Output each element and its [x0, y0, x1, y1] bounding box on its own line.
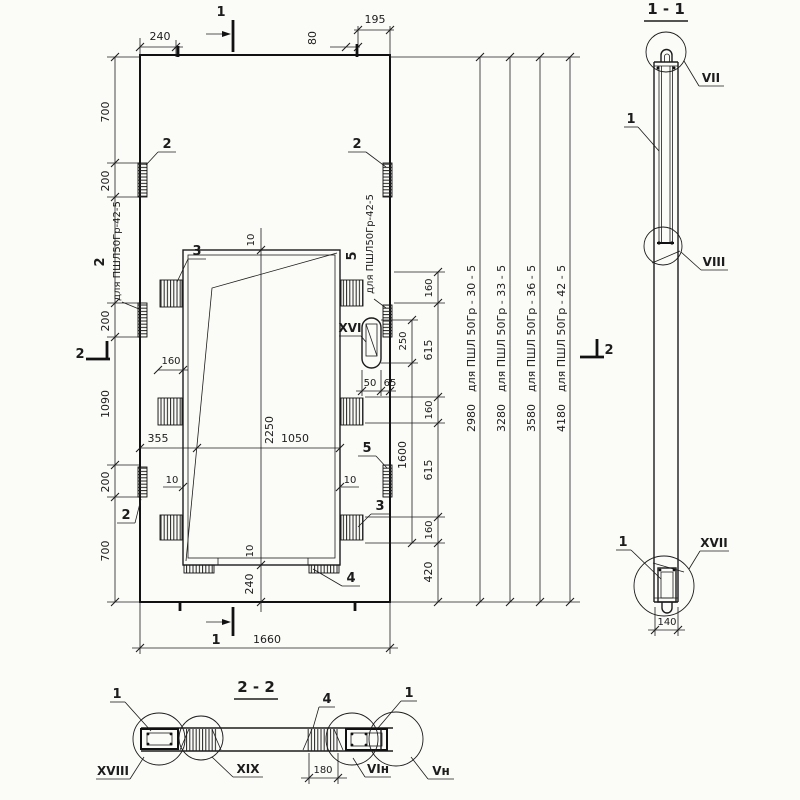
right-hatch-zone: [303, 729, 343, 751]
detail-circle-v-n: [369, 712, 423, 766]
dim-1600: 1600: [396, 441, 409, 469]
note-right-item-5: 5: [345, 251, 360, 260]
dim-160-r2: 160: [424, 400, 435, 419]
left-strip-1: [138, 163, 147, 197]
side-blocks: [158, 280, 363, 540]
section-marker-2-right: 2: [580, 339, 614, 358]
dim-1050: 1050: [281, 432, 309, 445]
variant-dim-4180: 4180для ПШЛ 50Гр - 42 - 5: [555, 265, 568, 432]
note-left-text: для ПШЛ50Гр-42-5: [112, 201, 123, 301]
xvii-detail-content: [653, 563, 684, 613]
callout-2-top-right: 2: [352, 137, 361, 152]
dim-10-right: 10: [344, 475, 357, 486]
callout-5-bottom-right: 5: [362, 441, 371, 456]
left-block-2: [158, 398, 182, 425]
dim-1660: 1660: [253, 633, 281, 646]
detail-circle-xvii: [634, 556, 694, 616]
dim-10-bottom: 10: [245, 545, 256, 558]
dim-65: 65: [384, 378, 397, 389]
callout-3-top-left: 3: [192, 244, 201, 259]
section-marker-1-top: 1: [206, 5, 233, 52]
dim-700-a: 700: [99, 102, 112, 123]
left-block-1: [160, 280, 182, 307]
bottom-pad-left: [184, 565, 214, 573]
drawing-sheet: 240 80 195 1 1660: [0, 0, 800, 800]
dim-240-top: 240: [150, 30, 171, 43]
detail-xvii-label: XVII: [700, 536, 727, 550]
variant-length-dimensions: 2980для ПШЛ 50Гр - 30 - 5 3280для ПШЛ 50…: [390, 53, 580, 606]
right-strip-2: [383, 305, 392, 337]
section-2-2-labels: 1 4 1 XVIII XIX VIн Vн 180: [96, 686, 454, 784]
detail-vii-label: VII: [702, 71, 720, 85]
opening-diagonal: [186, 253, 337, 561]
left-hatch-zone: [180, 729, 221, 751]
dim-160-left: 160: [161, 356, 180, 367]
callout-2-bottom-left: 2: [121, 508, 130, 523]
right-block-3: [341, 515, 363, 540]
dim-2250: 2250: [263, 416, 276, 444]
note-right-text: для ПШЛ50Гр-42-5: [365, 194, 376, 294]
dim-240-bottom: 240: [243, 574, 256, 595]
section-1-label: 1: [216, 5, 225, 20]
dim-200-a: 200: [99, 171, 112, 192]
variant-dim-2980: 2980для ПШЛ 50Гр - 30 - 5: [465, 265, 478, 432]
variant-dim-3580: 3580для ПШЛ 50Гр - 36 - 5: [525, 265, 538, 432]
xvi-slot: [362, 318, 381, 368]
left-block-3: [160, 515, 182, 540]
section-1-1-title: 1 - 1: [647, 0, 685, 18]
dim-160-r3: 160: [424, 520, 435, 539]
dim-180: 180: [313, 765, 332, 776]
callout-2-top-left: 2: [162, 137, 171, 152]
section-2-2-title: 2 - 2: [237, 678, 275, 696]
dim-80-top: 80: [306, 31, 319, 45]
dim-10-left: 10: [166, 475, 179, 486]
callout-1-left-22: 1: [112, 687, 121, 702]
dim-200-b: 200: [99, 311, 112, 332]
dim-700-b: 700: [99, 541, 112, 562]
dim-160-r1: 160: [424, 278, 435, 297]
callout-1-bottom: 1: [618, 535, 627, 550]
section-2-label-right: 2: [604, 343, 613, 358]
callout-1-right-22: 1: [404, 686, 413, 701]
detail-circle-viii: [644, 227, 682, 265]
callout-3-bottom-right: 3: [375, 499, 384, 514]
bottom-lifting-loop: [662, 602, 672, 613]
section-1-1-view: 1 - 1 VII VIII: [616, 0, 729, 636]
dim-200-c: 200: [99, 472, 112, 493]
right-end-anchor: [346, 729, 387, 750]
plan-bottom-dimensions: 1660: [132, 602, 398, 654]
opening-formwork: [183, 228, 340, 612]
section-marker-1-bottom: 1: [206, 607, 233, 648]
variant-dim-3280: 3280для ПШЛ 50Гр - 33 - 5: [495, 265, 508, 432]
plan-top-dimensions: 240 80 195: [136, 13, 394, 57]
dim-140: 140: [657, 617, 676, 628]
right-strip-3: [383, 465, 392, 497]
left-strip-2: [138, 303, 147, 337]
dim-615-r2: 615: [422, 460, 435, 481]
left-strip-3: [138, 467, 147, 497]
dim-1090: 1090: [99, 390, 112, 418]
right-block-2: [341, 398, 363, 425]
section-2-label-left: 2: [75, 347, 84, 362]
left-end-anchor: [141, 729, 178, 749]
callout-1-top: 1: [626, 112, 635, 127]
dim-10-top: 10: [246, 234, 257, 247]
engineering-drawing: 240 80 195 1 1660: [0, 0, 800, 800]
dim-615-r1: 615: [422, 340, 435, 361]
plan-view: 240 80 195 1 1660: [75, 5, 613, 654]
detail-xix-label: XIX: [237, 762, 261, 776]
section-2-2-view: 2 - 2: [96, 678, 454, 784]
callout-4-bottom: 4: [346, 571, 355, 586]
callout-4-22: 4: [322, 692, 331, 707]
section-1-label-bottom: 1: [211, 633, 220, 648]
right-strip-1: [383, 163, 392, 197]
detail-xvi-label: XVI: [338, 321, 361, 335]
detail-viii-label: VIII: [703, 255, 726, 269]
note-left-item-2: 2: [93, 257, 108, 266]
dim-355: 355: [148, 432, 169, 445]
detail-xviii-label: XVIII: [97, 764, 129, 778]
detail-v-n-label: Vн: [432, 764, 450, 778]
dim-195-top: 195: [365, 13, 386, 26]
dim-50: 50: [364, 378, 377, 389]
right-block-1: [341, 280, 363, 306]
dim-250: 250: [398, 331, 409, 350]
top-lifting-loop: [661, 50, 672, 63]
section-marker-2-left: 2: [75, 341, 110, 362]
dim-420: 420: [422, 562, 435, 583]
detail-vi-n-label: VIн: [367, 762, 389, 776]
